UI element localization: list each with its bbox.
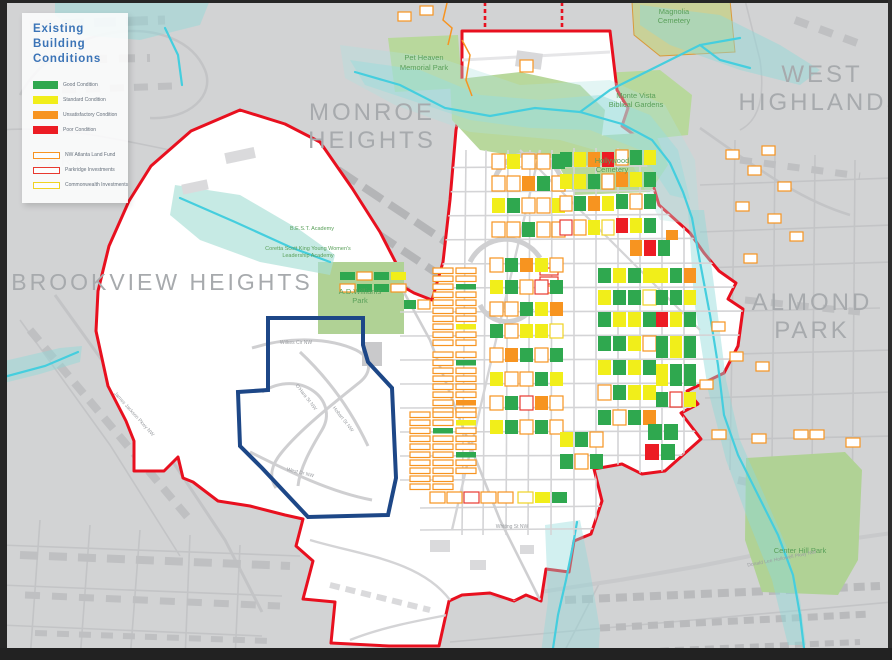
parcel (736, 202, 749, 211)
parcel (391, 284, 406, 292)
parcel (507, 198, 520, 213)
parcel (535, 324, 548, 338)
parcel (410, 452, 430, 458)
parkridge-label: Parkridge Investments (65, 167, 115, 173)
legend-title-line1: Existing (33, 22, 122, 37)
parcel (456, 460, 476, 466)
parcel (628, 336, 641, 351)
parcel (656, 392, 668, 407)
parcel (433, 316, 453, 322)
parcel (630, 172, 642, 187)
parcel (613, 410, 626, 425)
parcel (520, 372, 533, 386)
parcel (456, 384, 476, 390)
parcel (490, 420, 503, 434)
parcel (756, 362, 769, 371)
legend-item-parkridge: Parkridge Investments (33, 163, 122, 178)
parcel (456, 392, 476, 398)
parcel (410, 468, 430, 474)
commonwealth-label: Commonwealth Investments (65, 182, 128, 188)
parcel (418, 300, 430, 309)
brookview-heights-label: BROOKVIEW HEIGHTS (11, 269, 312, 295)
parcel (456, 420, 476, 426)
coretta-label2: Leadership Academy (282, 253, 334, 259)
parcel (644, 240, 656, 256)
parcel (520, 60, 533, 72)
parcel (507, 176, 520, 191)
parcel (505, 280, 518, 294)
parcel (456, 368, 476, 374)
parcel (628, 290, 641, 305)
parcel (700, 380, 713, 389)
parcel (560, 174, 572, 189)
parcel (433, 352, 453, 358)
parcel (410, 484, 430, 490)
parcel (588, 220, 600, 235)
parcel (340, 272, 355, 280)
parcel (433, 340, 453, 346)
parcel (644, 194, 656, 209)
parcel (643, 268, 656, 283)
parcel (846, 438, 860, 447)
parcel (433, 400, 453, 406)
parcel (410, 460, 430, 466)
parcel (456, 308, 476, 314)
parcel (616, 218, 628, 233)
parcel (537, 176, 550, 191)
parcel (505, 372, 518, 386)
parcel (726, 150, 739, 159)
parcel (664, 424, 678, 440)
parcel (456, 316, 476, 322)
good-condition-label: Good Condition (63, 82, 98, 88)
parcel (433, 284, 453, 290)
parcel (616, 172, 628, 187)
parcel (433, 376, 453, 382)
parcel (550, 420, 563, 434)
parcel (630, 240, 642, 256)
parcel (560, 432, 573, 447)
parcel (666, 230, 678, 240)
parcel (410, 412, 430, 418)
poor-condition-swatch (33, 126, 58, 134)
parcel (575, 432, 588, 447)
parcel (598, 336, 611, 351)
legend-title-line3: Conditions (33, 52, 122, 67)
parcel (628, 268, 641, 283)
parcel (490, 348, 503, 362)
parcel (810, 430, 824, 439)
parcel (768, 214, 781, 223)
parcel (590, 454, 603, 469)
standard-condition-label: Standard Condition (63, 97, 106, 103)
parcel (492, 222, 505, 237)
parcel (433, 360, 453, 366)
parcel (574, 174, 586, 189)
parcel (550, 348, 563, 362)
parcel (574, 152, 586, 167)
legend-item-good: Good Condition (33, 78, 122, 93)
parcel (456, 300, 476, 306)
parcel (357, 272, 372, 280)
parcel (490, 372, 503, 386)
parcel (794, 430, 808, 439)
parcel (456, 360, 476, 366)
parcel (456, 436, 476, 442)
map-canvas: PARK MONROE HEIGHTS WEST HIGHLANDS BROOK… (0, 0, 892, 660)
parcel (433, 276, 453, 282)
monte-vista-label2: Biblical Gardens (609, 100, 664, 109)
parcel (630, 150, 642, 165)
parcel (410, 420, 430, 426)
parcel (550, 396, 563, 410)
parcel (550, 372, 563, 386)
parcel (552, 492, 567, 503)
parcel (433, 476, 453, 482)
parcel (588, 174, 600, 189)
parcel (456, 352, 476, 358)
parcel (433, 468, 453, 474)
parcel (433, 300, 453, 306)
parcel (712, 430, 726, 439)
parcel (613, 290, 626, 305)
adw-park-label: A.D.Williams (339, 287, 382, 296)
parcel (456, 268, 476, 274)
parcel (456, 452, 476, 458)
parcel (575, 454, 588, 469)
parcel (391, 272, 406, 280)
parcel (456, 340, 476, 346)
parcel (588, 196, 600, 211)
parcel (492, 176, 505, 191)
parcel (643, 410, 656, 425)
parcel (670, 364, 682, 386)
parcel (520, 396, 533, 410)
parcel (748, 166, 761, 175)
adw-park-label2: Park (352, 296, 368, 305)
parcel (613, 268, 626, 283)
parcel (505, 420, 518, 434)
parcel (598, 360, 611, 375)
parcel (505, 396, 518, 410)
parcel (410, 476, 430, 482)
parcel (464, 492, 479, 503)
parcel (630, 194, 642, 209)
parcel (628, 312, 641, 327)
parcel (492, 154, 505, 169)
parcel (520, 324, 533, 338)
poor-condition-label: Poor Condition (63, 127, 96, 133)
parcel (684, 312, 696, 327)
monroe-heights-label2: HEIGHTS (308, 127, 436, 154)
parcel (492, 198, 505, 213)
legend-item-poor: Poor Condition (33, 123, 122, 138)
parcel (744, 254, 757, 263)
west-highlands-label: WEST (781, 61, 862, 88)
parcel (656, 364, 668, 386)
parcel (550, 258, 563, 272)
legend-title: Existing Building Conditions (33, 22, 122, 68)
parcel (630, 218, 642, 233)
parcel (410, 444, 430, 450)
parcel (598, 268, 611, 283)
parcel (490, 396, 503, 410)
commonwealth-swatch (33, 182, 60, 189)
parcel (752, 434, 766, 443)
parcel (410, 428, 430, 434)
parcel (433, 292, 453, 298)
parcel (430, 492, 445, 503)
parcel (645, 444, 659, 460)
parcel (644, 150, 656, 165)
parcel (374, 272, 389, 280)
parcel (684, 290, 696, 305)
parcel (670, 290, 682, 305)
parcel (522, 222, 535, 237)
parcel (602, 174, 614, 189)
west-highlands-label2: HIGHLANDS (738, 89, 892, 116)
parcel (537, 222, 550, 237)
unsatisfactory-condition-label: Unsatisfactory Condition (63, 112, 117, 118)
parcel (602, 196, 614, 211)
parcel (518, 492, 533, 503)
parcel (643, 290, 656, 305)
parcel (456, 276, 476, 282)
parcel (522, 176, 535, 191)
parcel (613, 385, 626, 400)
parcel (535, 280, 548, 294)
parcel (670, 268, 682, 283)
magnolia-label: Magnolia (659, 7, 690, 16)
parcel (433, 392, 453, 398)
parcel (498, 492, 513, 503)
pet-heaven-label: Pet Heaven (404, 53, 443, 62)
monte-vista-label: Monte Vista (616, 91, 656, 100)
parcel (643, 385, 656, 400)
parcel (628, 360, 641, 375)
parcel (505, 258, 518, 272)
parcel (656, 290, 668, 305)
parcel (643, 336, 656, 351)
parcel (730, 352, 743, 361)
parcel (456, 468, 476, 474)
parcel (602, 220, 614, 235)
parcel (433, 368, 453, 374)
parcel (560, 220, 572, 235)
parcel (661, 444, 675, 460)
parcel (456, 292, 476, 298)
parcel (574, 220, 586, 235)
parcel (762, 146, 775, 155)
best-academy-label: B.E.S.T. Academy (290, 226, 334, 232)
parcel (505, 348, 518, 362)
parcel (684, 392, 696, 407)
parcel (778, 182, 791, 191)
parcel (490, 258, 503, 272)
parcel (456, 428, 476, 434)
parcel (433, 436, 453, 442)
parcel (656, 268, 668, 283)
parcel (643, 360, 656, 375)
parcel (616, 194, 628, 209)
parcel (535, 302, 548, 316)
parcel (433, 428, 453, 434)
pet-heaven-label2: Memorial Park (400, 63, 449, 72)
parcel (628, 385, 641, 400)
parcel (644, 172, 656, 187)
parcel (520, 420, 533, 434)
parcel (598, 312, 611, 327)
parcel (433, 332, 453, 338)
standard-condition-swatch (33, 96, 58, 104)
parcel (447, 492, 462, 503)
parcel (537, 154, 550, 169)
parcel (656, 336, 668, 358)
legend-title-line2: Building (33, 37, 122, 52)
magnolia-label2: Cemetery (658, 16, 691, 25)
parcel (613, 336, 626, 351)
parcel (433, 420, 453, 426)
parcel (456, 324, 476, 330)
parcel (574, 196, 586, 211)
parcel (507, 154, 520, 169)
parcel (520, 258, 533, 272)
parcel (550, 280, 563, 294)
parcel (535, 372, 548, 386)
legend-item-standard: Standard Condition (33, 93, 122, 108)
parcel (505, 302, 518, 316)
parcel (404, 300, 416, 309)
parcel (684, 336, 696, 358)
parcel (598, 290, 611, 305)
parcel (550, 302, 563, 316)
parcel (656, 312, 668, 327)
parcel (490, 302, 503, 316)
parcel (433, 452, 453, 458)
parcel (670, 336, 682, 358)
street-wilkes: Wilkes Cir NW (280, 340, 312, 346)
parcel (670, 392, 682, 407)
parcel (670, 312, 682, 327)
parcel (613, 360, 626, 375)
map-viewport: PARK MONROE HEIGHTS WEST HIGHLANDS BROOK… (0, 0, 892, 660)
parcel (613, 312, 626, 327)
parcel (507, 222, 520, 237)
parcel (522, 198, 535, 213)
parcel (410, 436, 430, 442)
parcel (433, 324, 453, 330)
legend-item-unsatisfactory: Unsatisfactory Condition (33, 108, 122, 123)
hollywood-label2: Cemetery (596, 165, 629, 174)
parcel (456, 400, 476, 406)
parcel (648, 424, 662, 440)
parcel (598, 410, 611, 425)
legend-panel: Existing Building Conditions Good Condit… (22, 13, 128, 203)
parcel (520, 302, 533, 316)
parcel (490, 280, 503, 294)
parcel (590, 432, 603, 447)
parcel (560, 454, 573, 469)
nw-atlanta-label: NW Atlanta Land Fund (65, 152, 115, 158)
legend-item-nw-atlanta: NW Atlanta Land Fund (33, 148, 122, 163)
parcel (535, 492, 550, 503)
parcel (790, 232, 803, 241)
almond-park-label: ALMOND (752, 289, 873, 316)
parcel (433, 384, 453, 390)
almond-park-label2: PARK (774, 317, 850, 344)
parcel (490, 324, 503, 338)
parcel (643, 312, 656, 327)
parcel (658, 240, 670, 256)
legend-item-commonwealth: Commonwealth Investments (33, 178, 122, 193)
parcel (433, 412, 453, 418)
parcel (456, 376, 476, 382)
parcel (522, 154, 535, 169)
parcel (433, 268, 453, 274)
parcel (684, 268, 696, 283)
parcel (456, 412, 476, 418)
parcel (505, 324, 518, 338)
parcel (520, 348, 533, 362)
unsatisfactory-condition-swatch (33, 111, 58, 119)
hollywood-label: Hollywood (595, 156, 630, 165)
parcel (560, 196, 572, 211)
parcel (535, 258, 548, 272)
parcel (535, 420, 548, 434)
parcel (433, 460, 453, 466)
parcel (433, 484, 453, 490)
parcel (560, 152, 572, 167)
parkridge-swatch (33, 167, 60, 174)
parcel (398, 12, 411, 21)
parcel (712, 322, 725, 331)
parcel (644, 218, 656, 233)
good-condition-swatch (33, 81, 58, 89)
parcel (433, 444, 453, 450)
parcel (535, 348, 548, 362)
parcel (535, 396, 548, 410)
parcel (433, 308, 453, 314)
monroe-heights-label: MONROE (309, 99, 435, 126)
parcel (598, 385, 611, 400)
parcel (481, 492, 496, 503)
parcel (456, 444, 476, 450)
parcel (550, 324, 563, 338)
parcel (628, 410, 641, 425)
parcel (520, 280, 533, 294)
parcel (420, 6, 433, 15)
coretta-label1: Coretta Scott King Young Women's (265, 246, 351, 252)
street-whiting: Whiting St NW (496, 524, 529, 530)
parcel (684, 364, 696, 386)
parcel (456, 284, 476, 290)
nw-atlanta-swatch (33, 152, 60, 159)
parcel (456, 332, 476, 338)
parcel (537, 198, 550, 213)
